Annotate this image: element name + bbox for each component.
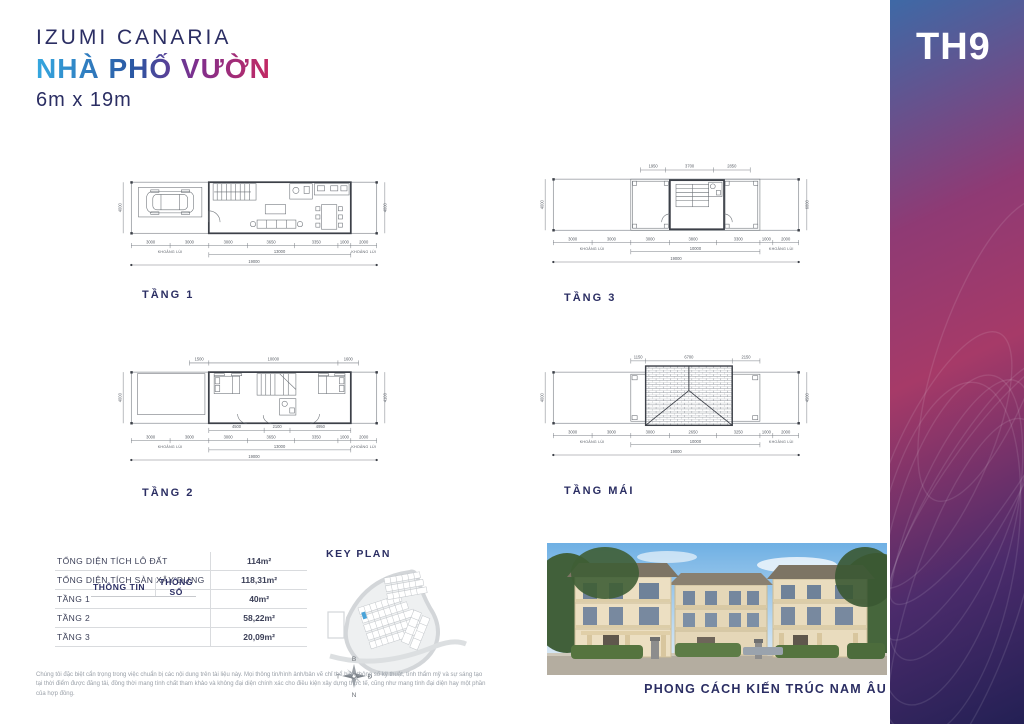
svg-text:3000: 3000: [185, 239, 195, 244]
svg-text:1150: 1150: [634, 355, 644, 360]
floorplan-tang1: 3000 3000 3000 3650 3350 1000 2000 KHOẢN…: [116, 158, 392, 301]
floorplan-tang1-label: TẦNG 1: [142, 289, 392, 301]
svg-text:3350: 3350: [312, 434, 322, 439]
svg-text:4000: 4000: [118, 392, 123, 402]
svg-text:2150: 2150: [741, 355, 751, 360]
key-plan-title: KEY PLAN: [326, 548, 478, 560]
svg-text:4000: 4000: [540, 199, 545, 209]
svg-text:3000: 3000: [568, 236, 578, 241]
page-header: IZUMI CANARIA NHÀ PHỐ VƯỜN 6m x 19m: [36, 26, 271, 112]
floorplan-tangmai-label: TẦNG MÁI: [564, 485, 814, 497]
svg-text:KHOẢNG LÙI: KHOẢNG LÙI: [769, 246, 794, 251]
svg-text:1600: 1600: [344, 357, 354, 362]
svg-text:19000: 19000: [248, 259, 260, 264]
svg-text:KHOẢNG LÙI: KHOẢNG LÙI: [351, 444, 376, 449]
floorplan-tang3: 1950 3700 2850: [538, 153, 814, 304]
svg-text:1000: 1000: [762, 429, 772, 434]
compass-north-label: B: [352, 656, 356, 663]
project-name: IZUMI CANARIA: [36, 26, 271, 50]
svg-text:2850: 2850: [727, 164, 737, 169]
svg-text:4100: 4100: [383, 392, 388, 402]
svg-text:6000: 6000: [805, 199, 810, 209]
spec-value: 114m²: [211, 556, 307, 566]
svg-text:2000: 2000: [781, 429, 791, 434]
unit-code-badge: TH9: [916, 26, 991, 69]
svg-text:3000: 3000: [646, 429, 656, 434]
svg-text:KHOẢNG LÙI: KHOẢNG LÙI: [158, 444, 183, 449]
spec-key: TỔNG DIỆN TÍCH LÔ ĐẤT: [55, 552, 211, 570]
floorplan-tangmai-drawing: 1150 6700 2150 3000 3000 3000 2650 3250: [538, 346, 814, 476]
svg-text:3800: 3800: [689, 236, 699, 241]
spec-value: 118,31m²: [211, 575, 307, 585]
spec-value: 40m²: [211, 594, 307, 604]
svg-text:KHOẢNG LÙI: KHOẢNG LÙI: [580, 246, 605, 251]
table-row: TỔNG DIỆN TÍCH LÔ ĐẤT 114m²: [55, 552, 307, 571]
svg-text:3000: 3000: [224, 239, 234, 244]
svg-text:3000: 3000: [146, 434, 156, 439]
brochure-page: IZUMI CANARIA NHÀ PHỐ VƯỜN 6m x 19m: [0, 0, 1024, 724]
right-sidebar: TH9: [890, 0, 1024, 724]
svg-text:13000: 13000: [274, 249, 286, 254]
disclaimer-text: Chúng tôi đặc biệt cẩn trọng trong việc …: [36, 671, 488, 699]
spec-table-header-row: THÔNG TIN THÔNG SỐ: [91, 578, 196, 597]
floorplan-tang3-label: TẦNG 3: [564, 292, 814, 304]
svg-text:KHOẢNG LÙI: KHOẢNG LÙI: [580, 439, 605, 444]
svg-text:6700: 6700: [684, 355, 694, 360]
svg-text:4500: 4500: [805, 392, 810, 402]
svg-text:4950: 4950: [316, 424, 326, 429]
svg-text:3000: 3000: [224, 434, 234, 439]
svg-text:10000: 10000: [690, 439, 702, 444]
spec-header-info: THÔNG TIN: [91, 578, 156, 596]
svg-text:4500: 4500: [232, 424, 242, 429]
svg-text:2100: 2100: [273, 424, 283, 429]
svg-text:3700: 3700: [685, 164, 695, 169]
svg-text:1000: 1000: [762, 236, 772, 241]
floorplan-tang2: 1500 10000 1600: [116, 346, 392, 499]
render-photo: [547, 543, 887, 675]
svg-text:3650: 3650: [267, 434, 277, 439]
svg-text:3250: 3250: [734, 429, 744, 434]
svg-text:3000: 3000: [646, 236, 656, 241]
svg-text:2000: 2000: [359, 239, 369, 244]
svg-text:3000: 3000: [607, 429, 617, 434]
floorplan-tangmai: 1150 6700 2150 3000 3000 3000 2650 3250: [538, 346, 814, 497]
svg-text:4000: 4000: [118, 202, 123, 212]
render-photo-illustration: [547, 543, 887, 675]
svg-text:19000: 19000: [670, 256, 682, 261]
svg-text:1000: 1000: [340, 239, 350, 244]
svg-text:19000: 19000: [670, 449, 682, 454]
product-type-title: NHÀ PHỐ VƯỜN: [36, 53, 271, 85]
render-photo-section: PHONG CÁCH KIẾN TRÚC NAM ÂU: [547, 543, 887, 696]
svg-text:KHOẢNG LÙI: KHOẢNG LÙI: [769, 439, 794, 444]
svg-text:1000: 1000: [340, 434, 350, 439]
svg-text:19000: 19000: [248, 454, 260, 459]
floorplan-tang3-drawing: 1950 3700 2850: [538, 153, 814, 283]
floorplan-tang2-drawing: 1500 10000 1600: [116, 346, 392, 478]
spec-value: 20,09m²: [211, 632, 307, 642]
svg-text:3000: 3000: [146, 239, 156, 244]
spec-table: THÔNG TIN THÔNG SỐ TỔNG DIỆN TÍCH LÔ ĐẤT…: [55, 552, 307, 647]
spec-key: TẦNG 2: [55, 609, 211, 627]
photo-caption: PHONG CÁCH KIẾN TRÚC NAM ÂU: [547, 682, 887, 696]
svg-text:10000: 10000: [690, 246, 702, 251]
floorplan-tang2-label: TẦNG 2: [142, 487, 392, 499]
svg-text:1500: 1500: [195, 357, 205, 362]
svg-text:1950: 1950: [649, 164, 659, 169]
svg-text:13000: 13000: [274, 444, 286, 449]
lot-size: 6m x 19m: [36, 89, 271, 112]
sidebar-decorative-curves: [890, 0, 1024, 724]
svg-text:4000: 4000: [383, 202, 388, 212]
floorplan-tang1-drawing: 3000 3000 3000 3650 3350 1000 2000 KHOẢN…: [116, 158, 392, 280]
spec-key: TẦNG 3: [55, 628, 211, 646]
spec-value: 58,22m²: [211, 613, 307, 623]
svg-text:10000: 10000: [268, 357, 280, 362]
svg-text:3350: 3350: [312, 239, 322, 244]
svg-text:4000: 4000: [540, 392, 545, 402]
svg-text:KHOẢNG LÙI: KHOẢNG LÙI: [158, 249, 183, 254]
table-row: TẦNG 2 58,22m²: [55, 609, 307, 628]
svg-text:3000: 3000: [568, 429, 578, 434]
svg-text:2000: 2000: [781, 236, 791, 241]
svg-text:3300: 3300: [734, 236, 744, 241]
svg-text:3000: 3000: [185, 434, 195, 439]
svg-text:3650: 3650: [267, 239, 277, 244]
svg-text:3000: 3000: [607, 236, 617, 241]
table-row: TẦNG 3 20,09m²: [55, 628, 307, 647]
svg-text:KHOẢNG LÙI: KHOẢNG LÙI: [351, 249, 376, 254]
svg-text:2000: 2000: [359, 434, 369, 439]
spec-header-value: THÔNG SỐ: [156, 577, 196, 597]
svg-text:2650: 2650: [689, 429, 699, 434]
